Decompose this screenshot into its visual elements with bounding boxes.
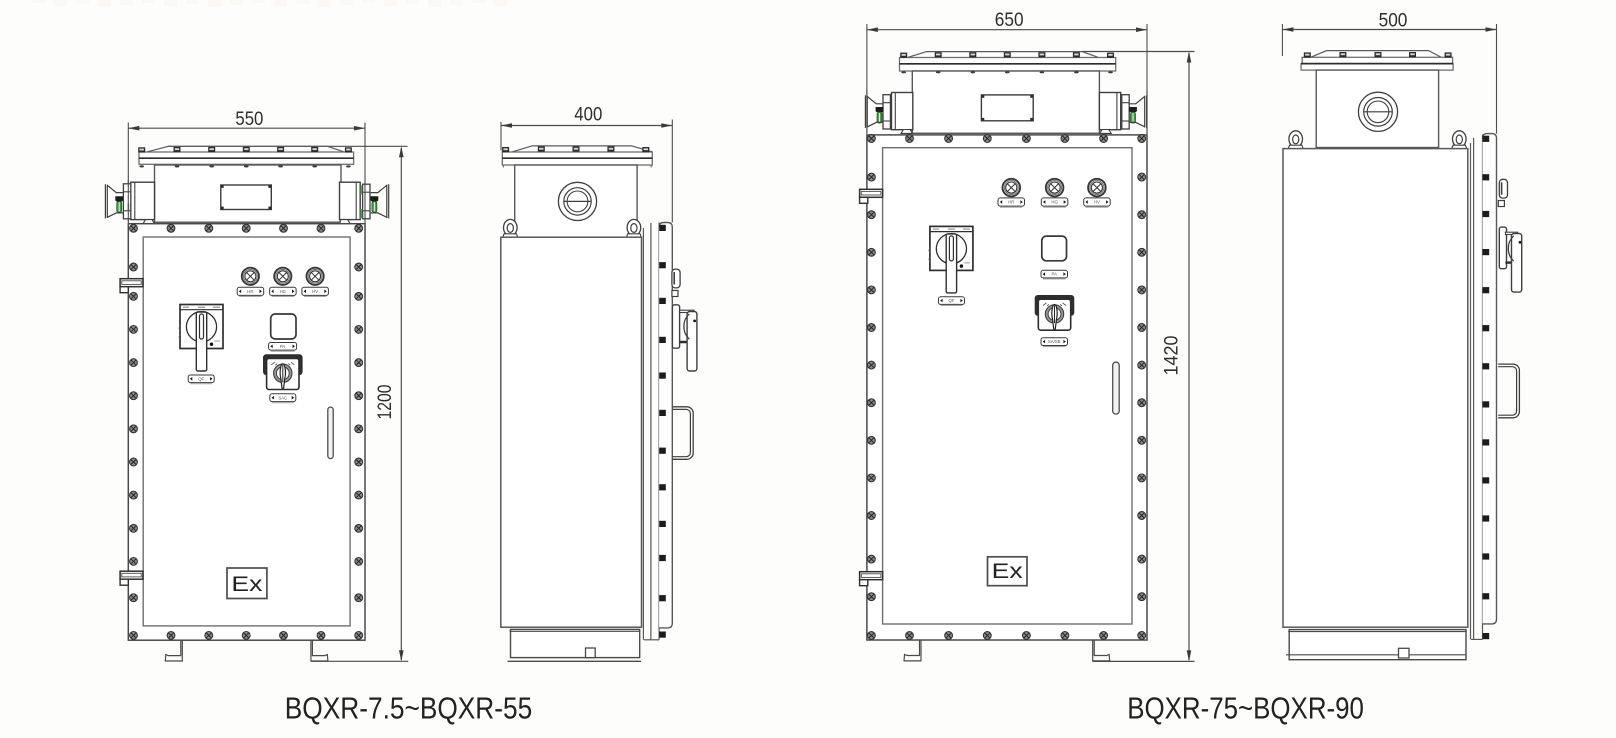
- svg-text:1420: 1420: [1161, 336, 1182, 376]
- svg-text:Ex: Ex: [992, 559, 1023, 583]
- svg-text:650: 650: [995, 10, 1024, 31]
- svg-text:PA: PA: [1051, 272, 1057, 277]
- svg-text:BQXR-75~BQXR-90: BQXR-75~BQXR-90: [1127, 691, 1364, 725]
- svg-text:QF: QF: [198, 376, 204, 381]
- svg-text:SAC: SAC: [278, 395, 287, 400]
- svg-text:HR: HR: [1008, 200, 1014, 205]
- svg-text:400: 400: [574, 105, 602, 126]
- svg-text:HG: HG: [1051, 200, 1058, 205]
- svg-text:HV: HV: [312, 289, 318, 294]
- svg-text:550: 550: [235, 109, 263, 130]
- svg-text:SA/SB: SA/SB: [1048, 339, 1061, 344]
- svg-text:1200: 1200: [375, 385, 396, 420]
- svg-text:PA: PA: [280, 344, 286, 349]
- svg-text:HV: HV: [1094, 200, 1100, 205]
- svg-text:500: 500: [1379, 11, 1408, 32]
- svg-text:HG: HG: [280, 289, 287, 294]
- svg-text:HR: HR: [247, 289, 253, 294]
- svg-text:QF: QF: [949, 298, 955, 303]
- svg-text:BQXR-7.5~BQXR-55: BQXR-7.5~BQXR-55: [285, 692, 533, 726]
- svg-text:Ex: Ex: [231, 572, 262, 596]
